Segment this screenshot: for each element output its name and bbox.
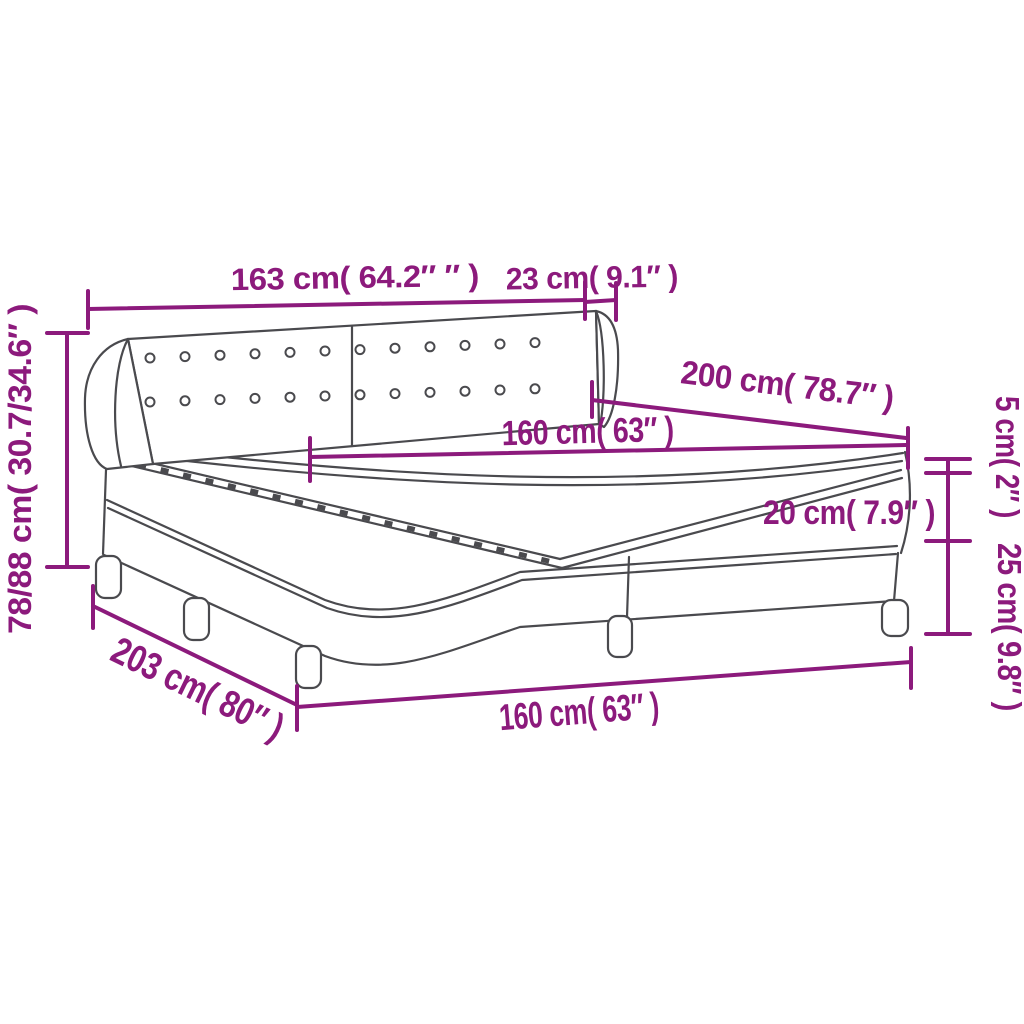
tufting-button <box>216 351 225 360</box>
headboard-right-wing <box>596 311 618 427</box>
tufting-button <box>321 347 330 356</box>
label-total-height: 78/88 cm( 30.7/34.6″ ) <box>2 304 38 634</box>
tufting-button <box>426 388 435 397</box>
tufting-button <box>356 390 365 399</box>
label-wing-depth: 23 cm( 9.1″ ) <box>506 259 679 297</box>
tufting-button <box>146 398 155 407</box>
dim-base-height <box>926 541 970 634</box>
label-base-height: 25 cm( 9.8″ ) <box>991 543 1024 711</box>
bed-base-center-seam <box>627 557 629 617</box>
bed-base-outline <box>104 553 898 665</box>
tufting-button <box>251 349 260 358</box>
bed-leg <box>96 556 121 598</box>
tufting-button <box>321 392 330 401</box>
bed-leg <box>608 616 632 657</box>
tufting-button <box>496 386 505 395</box>
dim-total-height <box>47 333 88 567</box>
tufting-button <box>426 342 435 351</box>
bed-leg <box>184 598 209 640</box>
bed-dimension-diagram: 163 cm( 64.2″ ″ ) 23 cm( 9.1″ ) 200 cm( … <box>0 0 1024 1024</box>
tufting-button <box>356 345 365 354</box>
dim-topper-height <box>926 459 970 473</box>
label-headboard-width: 163 cm( 64.2″ ″ ) <box>231 258 480 297</box>
tufting-button <box>251 394 260 403</box>
label-mattress-height: 20 cm( 7.9″ ) <box>763 494 935 532</box>
tufting-button <box>216 395 225 404</box>
tufting-button <box>461 387 470 396</box>
tufting-button <box>181 396 190 405</box>
bed-left-end-edge <box>103 470 106 554</box>
tufting-button <box>391 389 400 398</box>
label-base-width: 160 cm( 63″ ) <box>498 685 661 738</box>
tufting-button <box>146 354 155 363</box>
label-bed-length: 200 cm( 78.7″ ) <box>679 353 896 416</box>
tufting-button <box>496 340 505 349</box>
tufting-button <box>531 338 540 347</box>
tufting-button <box>391 344 400 353</box>
bed-pillowtop-seam-top <box>113 454 560 559</box>
bed-pillowtop-seam-bottom <box>119 463 562 568</box>
tufting-button <box>181 352 190 361</box>
bed-leg <box>882 600 908 636</box>
label-topper-height: 5 cm( 2″ ) <box>989 396 1024 518</box>
bed-leg <box>296 646 321 688</box>
tufting-button <box>286 348 295 357</box>
tufting-button <box>461 341 470 350</box>
tufting-button <box>286 393 295 402</box>
tufting-button <box>531 384 540 393</box>
label-mattress-width: 160 cm( 63″ ) <box>501 410 674 453</box>
diagram-canvas: 163 cm( 64.2″ ″ ) 23 cm( 9.1″ ) 200 cm( … <box>0 0 1024 1024</box>
